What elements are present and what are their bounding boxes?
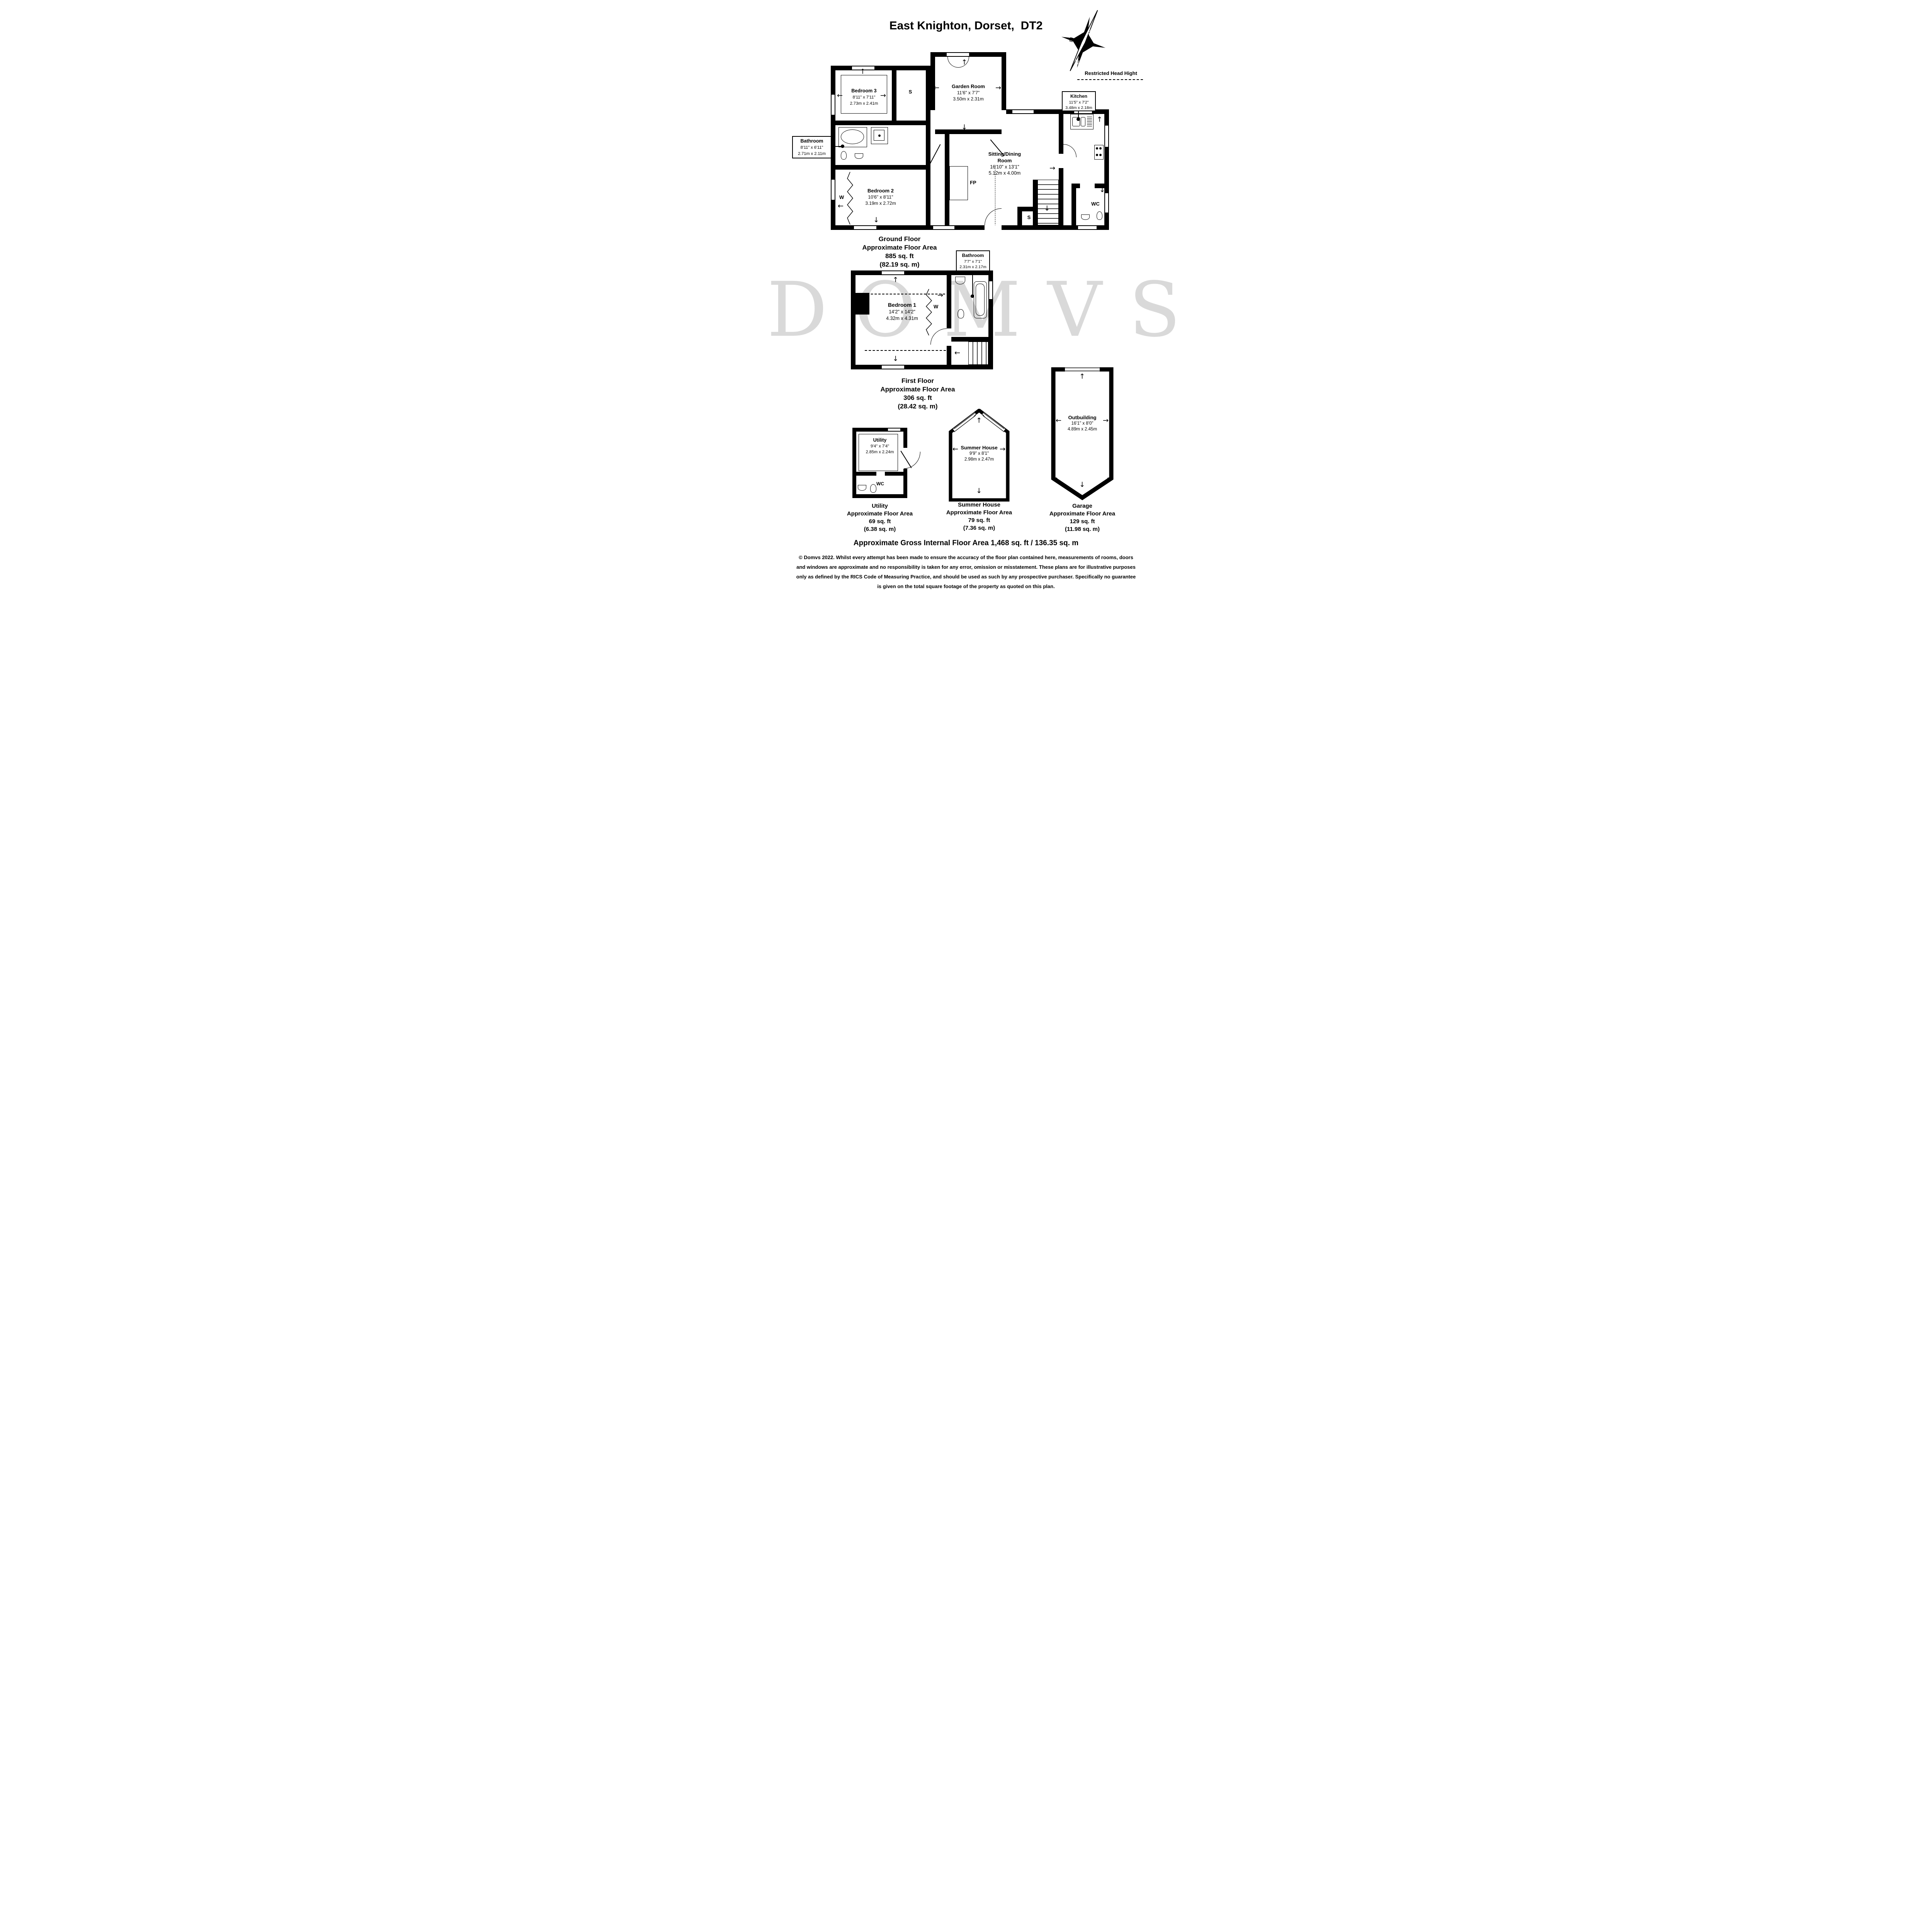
room-name: Bedroom 1: [862, 301, 942, 309]
room-name: Garden Room: [934, 83, 1002, 90]
window: [1012, 109, 1034, 114]
wall: [1033, 180, 1037, 230]
window: [882, 365, 904, 369]
window: [1078, 225, 1097, 230]
callout-leader-dot: [1077, 117, 1080, 121]
window: [933, 225, 954, 230]
arrow-icon: ↑: [976, 417, 982, 424]
window: [831, 95, 835, 115]
caption-line: 306 sq. ft: [875, 394, 960, 402]
bath-basin-icon: [841, 129, 864, 144]
wall: [1059, 168, 1063, 230]
cooker-ring-icon: [1099, 147, 1102, 150]
room-size-metric: 2.71m x 2.11m: [793, 151, 831, 157]
window: [831, 180, 835, 200]
cooker-ring-icon: [1096, 154, 1098, 156]
toilet-icon: [841, 151, 847, 160]
toilet-icon: [1097, 211, 1102, 220]
wall: [885, 472, 903, 476]
sink-icon: [955, 277, 965, 284]
arrow-icon: ←: [952, 446, 958, 453]
arrow-icon: ←: [934, 85, 939, 92]
caption-line: First Floor: [875, 377, 960, 385]
compass-west-label: W: [1088, 51, 1095, 59]
arrow-icon: ↑: [961, 59, 967, 66]
arrow-icon: ↑: [1097, 116, 1102, 123]
arrow-icon: ←: [838, 203, 844, 210]
room-size-imperial: 16'1" x 8'0": [1057, 421, 1107, 427]
sink-icon: [858, 485, 866, 491]
room-size-imperial: 11'5" x 7'2": [1063, 100, 1095, 105]
wc-label: WC: [1084, 201, 1107, 207]
caption-line: Approximate Floor Area: [875, 385, 960, 394]
first-floor-plan: Bedroom 1 14'2" x 14'2" 4.32m x 4.31m W …: [851, 270, 993, 369]
wall: [856, 472, 876, 476]
bathroom-callout-ground: Bathroom 8'11" x 6'11" 2.71m x 2.11m: [792, 136, 832, 158]
caption-line: Approximate Floor Area: [940, 509, 1018, 517]
room-size-imperial: 9'9" x 8'1": [954, 451, 1004, 457]
arrow-icon: →: [1049, 165, 1055, 172]
room-size-metric: 4.89m x 2.45m: [1057, 427, 1107, 432]
caption-line: Summer House: [940, 501, 1018, 509]
arrow-icon: ↑: [893, 277, 898, 284]
wall: [835, 121, 927, 125]
door-opening: [930, 110, 935, 134]
room-size-metric: 2.31m x 2.17m: [957, 264, 989, 270]
room-name: Summer House: [954, 444, 1004, 451]
room-label-outbuilding: Outbuilding 16'1" x 8'0" 4.89m x 2.45m: [1057, 414, 1107, 432]
stairs: [968, 342, 988, 365]
room-label-summer-house: Summer House 9'9" x 8'1" 2.98m x 2.47m: [954, 444, 1004, 463]
ground-floor-caption: Ground Floor Approximate Floor Area 885 …: [857, 235, 942, 269]
caption-line: 129 sq. ft: [1044, 518, 1121, 526]
window: [988, 281, 993, 299]
room-size-metric: 5.12m x 4.00m: [958, 170, 1051, 176]
room-label-sitting-dining-room: Sitting/Dining Room 16'10" x 13'1" 5.12m…: [958, 151, 1051, 176]
room-size-imperial: 8'11" x 6'11": [793, 145, 831, 151]
restricted-head-height-line: [1077, 79, 1143, 80]
caption-line: 885 sq. ft: [857, 252, 942, 260]
ground-floor-plan: Bedroom 3 8'11" x 7'11" 2.73m x 2.41m S …: [831, 52, 1113, 232]
door-arc: [1063, 144, 1077, 157]
door-arc: [904, 452, 920, 469]
wall: [951, 337, 990, 342]
room-size-metric: 2.73m x 2.41m: [836, 100, 892, 107]
callout-leader-dot: [841, 145, 844, 148]
room-name-line2: Room: [958, 157, 1051, 164]
garage-caption: Garage Approximate Floor Area 129 sq. ft…: [1044, 502, 1121, 533]
window: [888, 428, 900, 432]
wall: [1071, 184, 1076, 230]
bathroom-callout-first: Bathroom 7'7" x 7'1" 2.31m x 2.17m: [956, 250, 990, 271]
arrow-icon: ↓: [873, 217, 879, 224]
arrow-icon: ←: [857, 292, 863, 299]
room-size-imperial: 9'4" x 7'4": [855, 444, 904, 449]
restricted-head-height-line: [865, 350, 946, 351]
wall: [947, 275, 951, 365]
callout-leader-line: [972, 271, 973, 295]
room-size-metric: 3.50m x 2.31m: [934, 96, 1002, 102]
arrow-icon: ↓: [961, 124, 967, 131]
shower-drain-icon: [878, 134, 881, 137]
arrow-icon: ↓: [1099, 187, 1105, 194]
door-opening: [1080, 184, 1095, 188]
room-size-imperial: 16'10" x 13'1": [958, 164, 1051, 170]
window: [947, 52, 969, 57]
kitchen-sink-icon: [1070, 114, 1094, 129]
wc-label: WC: [876, 481, 884, 486]
arrow-icon: →: [937, 292, 943, 299]
utility-plan: Utility 9'4" x 7'4" 2.85m x 2.24m WC: [852, 428, 907, 498]
cooker-ring-icon: [1099, 154, 1102, 156]
arrow-icon: ←: [837, 92, 843, 99]
summer-house-plan: Summer House 9'9" x 8'1" 2.98m x 2.47m ←…: [949, 409, 1010, 502]
window: [1104, 126, 1109, 147]
caption-line: Approximate Floor Area: [857, 243, 942, 252]
caption-line: (82.19 sq. m): [857, 260, 942, 269]
arrow-icon: ←: [1056, 417, 1061, 424]
room-name: Bathroom: [793, 138, 831, 145]
sink-icon: [855, 153, 863, 159]
first-floor-caption: First Floor Approximate Floor Area 306 s…: [875, 377, 960, 411]
storage-label: S: [893, 89, 927, 95]
wall: [945, 129, 949, 230]
wardrobe-label: W: [839, 194, 844, 200]
arrow-icon: ↑: [1079, 373, 1085, 380]
arrow-icon: →: [880, 92, 886, 99]
toilet-icon: [870, 484, 876, 493]
wall: [1059, 109, 1063, 154]
cooker-ring-icon: [1096, 147, 1098, 150]
footer-disclaimer: © Domvs 2022. Whilst every attempt has b…: [796, 553, 1136, 591]
door-opening: [985, 225, 1002, 230]
footer-gross-area: Approximate Gross Internal Floor Area 1,…: [753, 539, 1179, 548]
caption-line: Approximate Floor Area: [841, 510, 918, 518]
arrow-icon: ↑: [860, 68, 866, 75]
room-name: Kitchen: [1063, 93, 1095, 100]
arrow-icon: →: [1103, 417, 1109, 424]
arrow-icon: ↓: [1044, 205, 1050, 212]
utility-caption: Utility Approximate Floor Area 69 sq. ft…: [841, 502, 918, 533]
arrow-icon: →: [1000, 446, 1005, 453]
caption-line: (11.98 sq. m): [1044, 526, 1121, 533]
room-label-utility: Utility 9'4" x 7'4" 2.85m x 2.24m: [855, 437, 904, 455]
wall: [892, 70, 896, 125]
room-name-line1: Sitting/Dining: [958, 151, 1051, 157]
bath-icon: [974, 281, 987, 318]
arrow-icon: ↓: [976, 488, 982, 495]
caption-line: Utility: [841, 502, 918, 510]
stairs: [1037, 180, 1059, 225]
sink-bowl-icon: [1081, 117, 1085, 126]
wardrobe-label: W: [934, 304, 938, 310]
restricted-head-height-label: Restricted Head Hight: [1078, 70, 1144, 76]
caption-line: (28.42 sq. m): [875, 402, 960, 411]
cooker-icon: [1094, 145, 1104, 160]
room-name: Utility: [855, 437, 904, 444]
restricted-head-height-line: [859, 294, 945, 294]
room-size-metric: 2.98m x 2.47m: [954, 457, 1004, 463]
caption-line: (7.36 sq. m): [940, 524, 1018, 532]
toilet-icon: [957, 309, 964, 318]
room-name: Outbuilding: [1057, 414, 1107, 421]
door-leaf: [929, 144, 941, 166]
room-size-imperial: 7'7" x 7'1": [957, 259, 989, 264]
window: [854, 225, 876, 230]
fireplace-label: FP: [970, 180, 976, 185]
room-label-garden-room: Garden Room 11'6" x 7'7" 3.50m x 2.31m: [934, 83, 1002, 102]
wall: [835, 165, 927, 170]
caption-line: 69 sq. ft: [841, 518, 918, 526]
summer-house-caption: Summer House Approximate Floor Area 79 s…: [940, 501, 1018, 532]
room-size-imperial: 14'2" x 14'2": [862, 309, 942, 315]
door-opening: [947, 328, 951, 346]
caption-line: Ground Floor: [857, 235, 942, 243]
compass-east-label: E: [1068, 36, 1074, 44]
storage-label: S: [1021, 214, 1037, 220]
room-label-bedroom-2: Bedroom 2 10'6" x 8'11" 3.19m x 2.72m: [837, 187, 924, 206]
door-arc: [985, 208, 1002, 225]
window: [882, 270, 904, 275]
caption-line: (6.38 sq. m): [841, 526, 918, 533]
sink-drainer-icon: [1087, 117, 1092, 127]
room-size-metric: 2.85m x 2.24m: [855, 449, 904, 455]
room-label-bedroom-1: Bedroom 1 14'2" x 14'2" 4.32m x 4.31m: [862, 301, 942, 322]
room-name: Bathroom: [957, 252, 989, 259]
arrow-icon: ↓: [1079, 481, 1085, 488]
room-name: Bedroom 2: [837, 187, 924, 194]
arrow-icon: →: [995, 85, 1001, 92]
room-size-metric: 4.32m x 4.31m: [862, 315, 942, 322]
bath-basin-icon: [976, 284, 985, 316]
callout-leader-dot: [971, 294, 974, 298]
floor-plan-page: East Knighton, Dorset, DT2 S E W N Restr…: [753, 0, 1179, 602]
shower-icon: [871, 127, 888, 144]
door-opening: [1002, 110, 1006, 134]
caption-line: Garage: [1044, 502, 1121, 510]
compass-north-label: N: [1074, 59, 1080, 66]
caption-line: Approximate Floor Area: [1044, 510, 1121, 518]
caption-line: 79 sq. ft: [940, 517, 1018, 524]
room-size-metric: 3.48m x 2.18m: [1063, 105, 1095, 111]
sink-icon: [1081, 214, 1090, 220]
room-size-imperial: 11'6" x 7'7": [934, 90, 1002, 96]
arrow-icon: ←: [954, 350, 960, 357]
kitchen-callout: Kitchen 11'5" x 7'2" 3.48m x 2.18m: [1062, 91, 1096, 111]
arrow-icon: ↓: [893, 355, 898, 362]
room-size-imperial: 10'6" x 8'11": [837, 194, 924, 200]
room-size-metric: 3.19m x 2.72m: [837, 200, 924, 206]
garage-plan: Outbuilding 16'1" x 8'0" 4.89m x 2.45m ←…: [1051, 367, 1114, 500]
